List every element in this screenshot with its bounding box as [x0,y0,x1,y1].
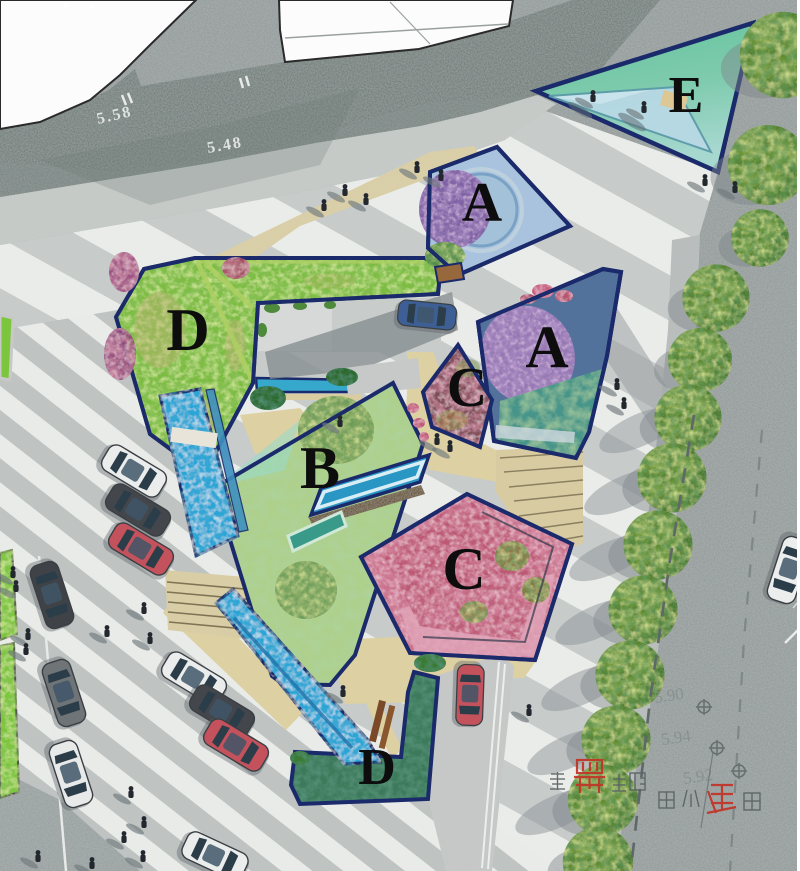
svg-text:D: D [166,297,209,363]
svg-text:D: D [358,739,396,796]
svg-text:C: C [442,536,485,602]
svg-text:B: B [300,435,340,501]
svg-text:E: E [669,67,704,124]
svg-text:A: A [525,314,568,380]
svg-text:A: A [462,172,503,234]
svg-text:C: C [447,357,487,419]
